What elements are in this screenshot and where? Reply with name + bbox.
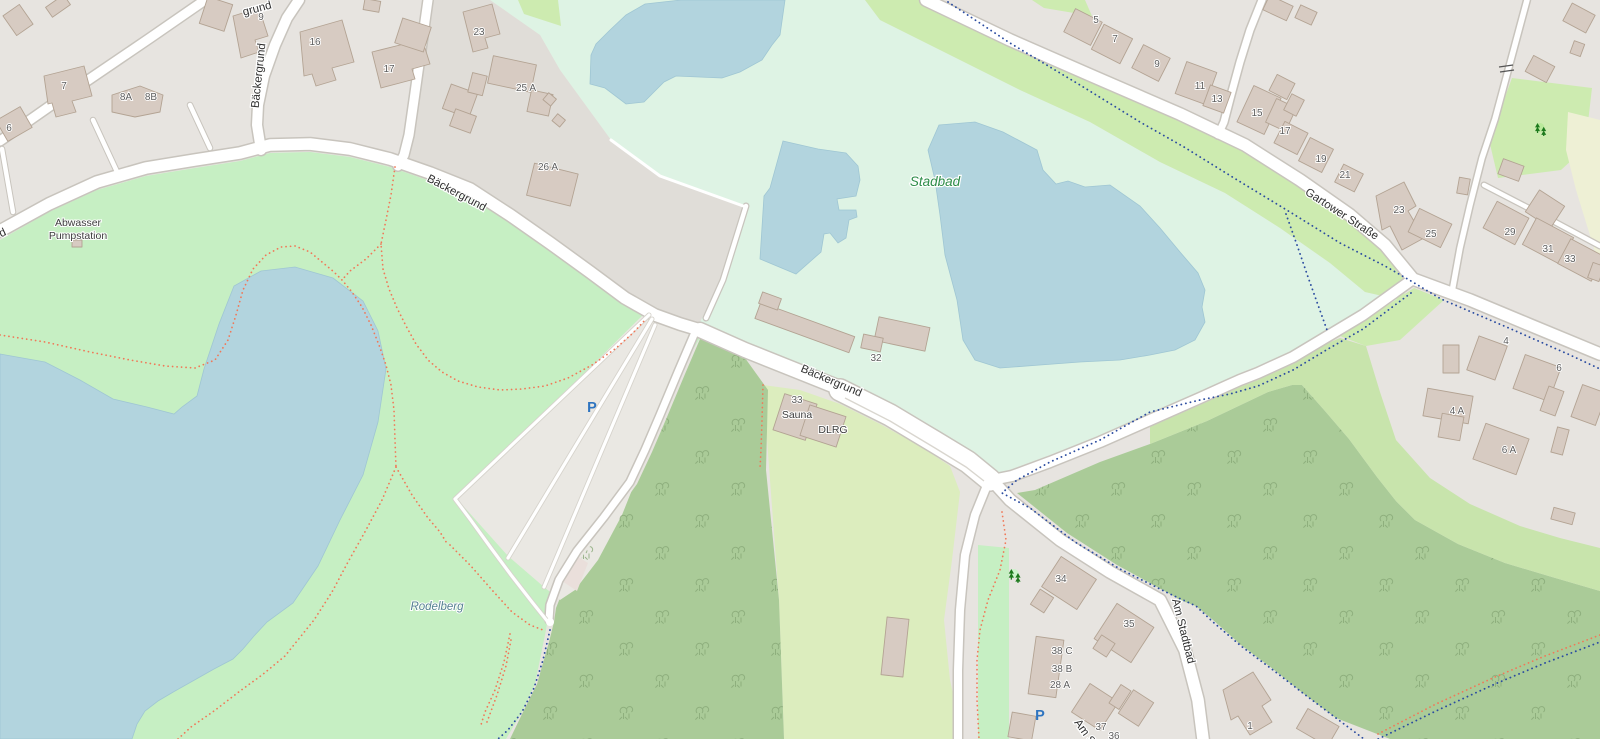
svg-text:17: 17	[383, 64, 395, 75]
svg-text:6: 6	[1556, 363, 1562, 374]
svg-text:13: 13	[1211, 94, 1223, 105]
svg-text:Abwasser: Abwasser	[55, 217, 102, 229]
svg-text:36: 36	[1108, 731, 1120, 739]
svg-text:DLRG: DLRG	[818, 424, 847, 436]
svg-text:23: 23	[1393, 205, 1405, 216]
svg-text:17: 17	[1279, 126, 1291, 137]
svg-text:38 C: 38 C	[1051, 646, 1072, 657]
svg-text:25: 25	[1425, 229, 1437, 240]
svg-text:7: 7	[1112, 34, 1118, 45]
svg-text:7: 7	[61, 81, 67, 92]
svg-text:P: P	[587, 400, 597, 416]
svg-text:15: 15	[1251, 108, 1263, 119]
svg-text:4 A: 4 A	[1450, 406, 1465, 417]
svg-text:9: 9	[1154, 59, 1160, 70]
svg-text:25 A: 25 A	[516, 83, 536, 94]
svg-text:11: 11	[1195, 81, 1206, 92]
svg-text:34: 34	[1055, 574, 1067, 585]
svg-text:9: 9	[258, 12, 264, 23]
svg-text:33: 33	[1564, 254, 1576, 265]
svg-text:32: 32	[870, 353, 882, 364]
svg-text:38 B: 38 B	[1052, 664, 1073, 675]
svg-text:6 A: 6 A	[1502, 445, 1517, 456]
svg-text:Stadbad: Stadbad	[910, 174, 961, 189]
svg-text:5: 5	[1093, 15, 1099, 26]
svg-text:35: 35	[1123, 619, 1135, 630]
svg-text:8B: 8B	[145, 92, 158, 103]
svg-text:28 A: 28 A	[1050, 680, 1070, 691]
svg-text:31: 31	[1542, 244, 1554, 255]
svg-text:8A: 8A	[120, 92, 133, 103]
svg-text:16: 16	[309, 37, 321, 48]
svg-text:P: P	[1035, 708, 1045, 724]
svg-text:37: 37	[1095, 722, 1107, 733]
svg-text:Rodelberg: Rodelberg	[410, 601, 464, 613]
svg-text:19: 19	[1315, 154, 1327, 165]
svg-text:Sauna: Sauna	[782, 409, 813, 421]
svg-text:1: 1	[1247, 721, 1253, 732]
svg-text:Pumpstation: Pumpstation	[49, 230, 108, 242]
svg-text:26 A: 26 A	[538, 162, 558, 173]
svg-text:6: 6	[6, 123, 12, 134]
svg-text:29: 29	[1504, 227, 1516, 238]
svg-text:23: 23	[473, 27, 485, 38]
svg-text:4: 4	[1503, 336, 1509, 347]
svg-text:21: 21	[1339, 170, 1351, 181]
svg-text:33: 33	[791, 395, 803, 406]
